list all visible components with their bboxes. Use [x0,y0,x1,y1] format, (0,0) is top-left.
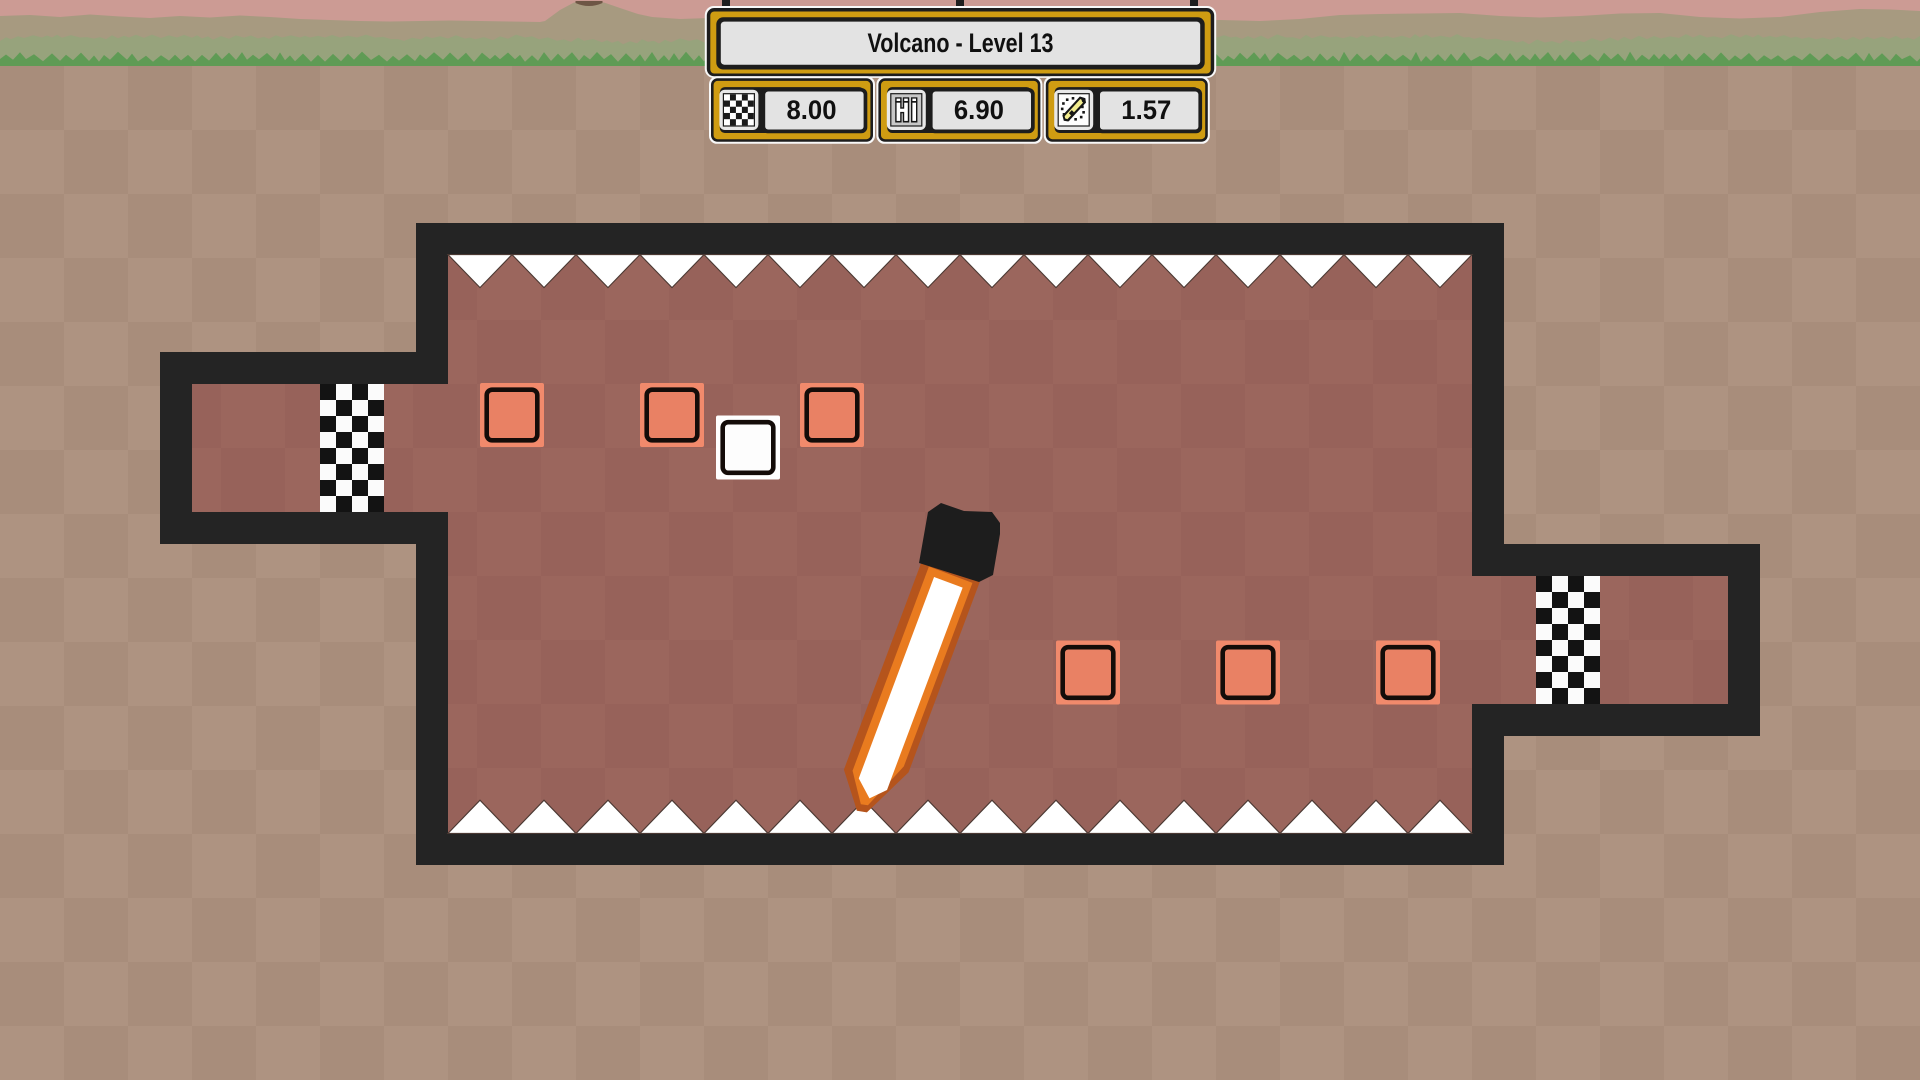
svg-text:1.57: 1.57 [1121,95,1171,125]
svg-text:6.90: 6.90 [954,95,1004,125]
svg-text:Volcano - Level 13: Volcano - Level 13 [868,28,1054,58]
svg-text:8.00: 8.00 [787,95,837,125]
